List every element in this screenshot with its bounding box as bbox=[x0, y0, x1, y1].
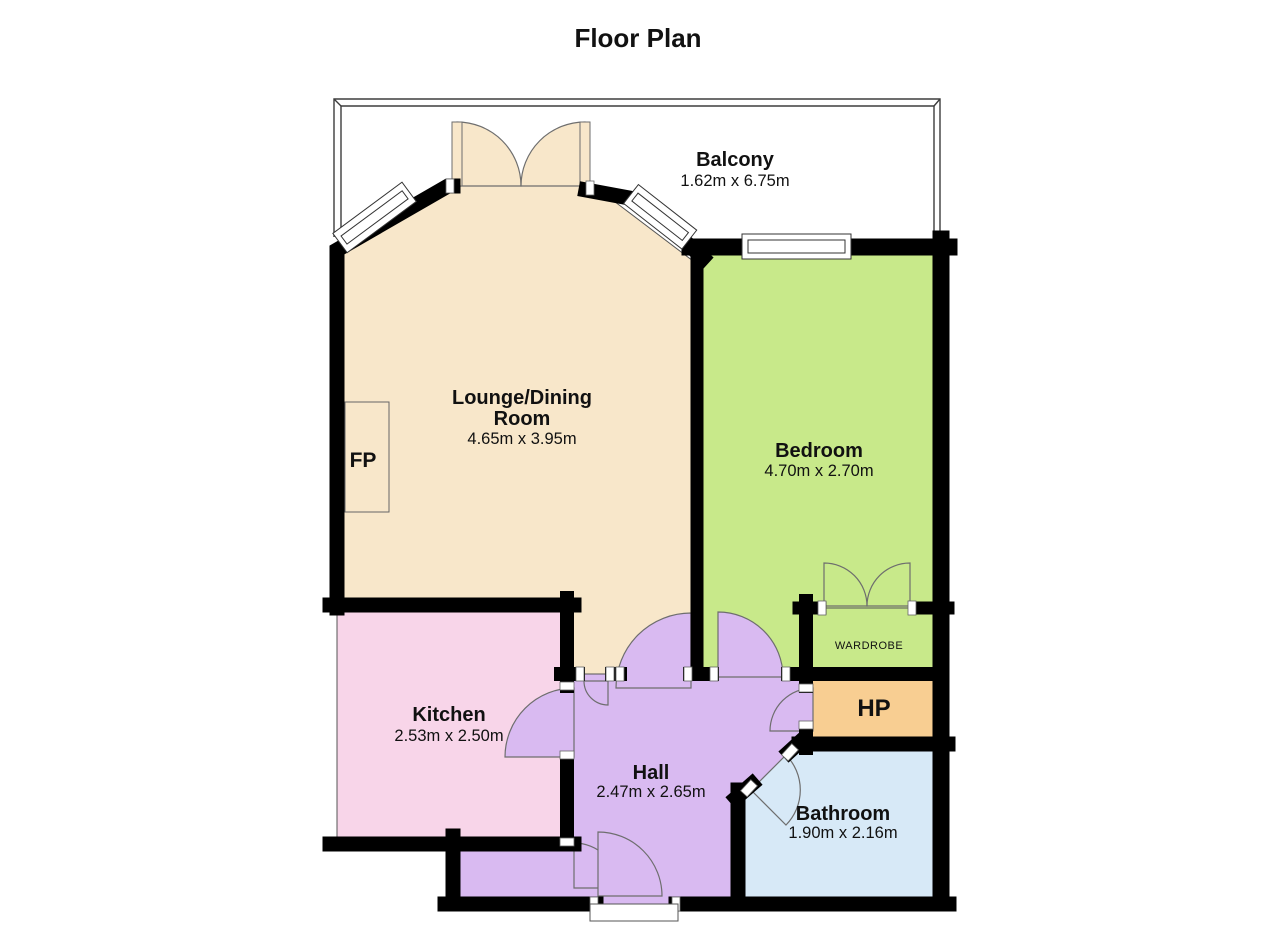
lounge-dims: 4.65m x 3.95m bbox=[467, 430, 576, 448]
balcony-door-arc bbox=[521, 122, 585, 186]
hp-label: HP bbox=[857, 695, 890, 722]
fireplace-box: FP bbox=[345, 402, 389, 512]
balcony-label: Balcony bbox=[696, 149, 775, 171]
balcony-door-leaf bbox=[580, 122, 590, 186]
balcony-door-leaf bbox=[452, 122, 462, 186]
wardrobe-label: WARDROBE bbox=[835, 640, 903, 652]
hall-label: Hall bbox=[633, 762, 670, 784]
kitchen-dims: 2.53m x 2.50m bbox=[394, 727, 503, 745]
bedroom-window bbox=[742, 234, 851, 259]
balcony-door-arc bbox=[457, 122, 521, 186]
balcony-dims: 1.62m x 6.75m bbox=[680, 172, 789, 190]
bathroom-dims: 1.90m x 2.16m bbox=[788, 824, 897, 842]
bedroom-label: Bedroom bbox=[775, 440, 863, 462]
entrance-threshold bbox=[590, 904, 678, 921]
hall-dims: 2.47m x 2.65m bbox=[596, 783, 705, 801]
page-title: Floor Plan bbox=[574, 23, 701, 53]
lounge-label-line2: Room bbox=[494, 408, 551, 430]
floor-plan-canvas: FP Floor Plan Balcony 1.62m x 6.75m Loun… bbox=[0, 0, 1280, 931]
fireplace-label: FP bbox=[350, 449, 377, 472]
kitchen-label: Kitchen bbox=[412, 704, 485, 726]
lounge-label: Lounge/Dining bbox=[452, 387, 592, 409]
floor-plan-page: FP Floor Plan Balcony 1.62m x 6.75m Loun… bbox=[0, 0, 1280, 931]
bathroom-label: Bathroom bbox=[796, 803, 890, 825]
bedroom-dims: 4.70m x 2.70m bbox=[764, 462, 873, 480]
